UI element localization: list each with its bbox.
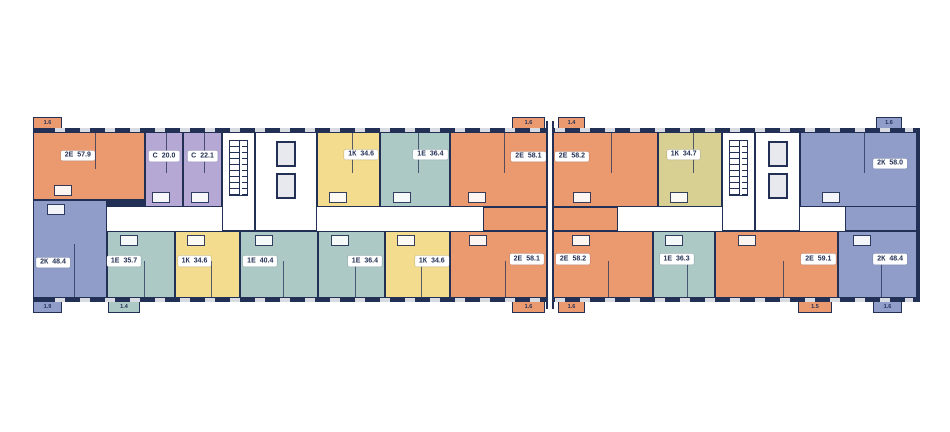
apartment-unit[interactable] — [553, 132, 658, 207]
apartment-unit[interactable] — [653, 231, 715, 298]
balcony-area-label: 1.5 — [811, 304, 819, 310]
unit-label-chip: 1Е36.3 — [659, 254, 693, 265]
elevator-shaft — [276, 141, 296, 167]
unit-type: 2Е — [559, 153, 568, 161]
unit-type: 2К — [877, 160, 885, 168]
apartment-unit[interactable] — [380, 132, 450, 207]
balcony-area-label: 1.9 — [44, 304, 52, 310]
unit-label-chip: С22.1 — [187, 151, 218, 162]
unit-label-chip: 1К34.6 — [344, 149, 378, 160]
unit-area: 58.2 — [571, 153, 585, 161]
unit-area: 57.9 — [77, 152, 91, 160]
stair-core — [222, 132, 255, 231]
unit-label-chip: 1К34.6 — [178, 256, 212, 267]
unit-label-chip: 2К58.0 — [873, 158, 907, 169]
unit-area: 34.6 — [194, 257, 208, 265]
balcony: 1.6 — [873, 301, 902, 313]
unit-type: 2Е — [560, 255, 569, 263]
unit-type: 2Е — [514, 255, 523, 263]
balcony: 1.9 — [33, 301, 62, 313]
unit-label-chip: 2Е58.1 — [511, 151, 545, 162]
unit-label-chip: 2Е58.2 — [555, 151, 589, 162]
unit-label-chip: 2Е57.9 — [61, 150, 95, 161]
unit-type: 2К — [40, 259, 48, 267]
apartment-unit[interactable] — [838, 231, 917, 298]
unit-area: 48.4 — [52, 259, 66, 267]
unit-area: 34.6 — [360, 151, 374, 159]
unit-area: 59.1 — [818, 255, 832, 263]
elevator-shaft — [276, 173, 296, 199]
unit-type: 1Е — [663, 255, 672, 263]
apartment-unit[interactable] — [450, 231, 551, 298]
unit-area: 36.4 — [364, 257, 378, 265]
unit-label-chip: 1Е40.4 — [243, 256, 277, 267]
apartment-unit[interactable] — [183, 132, 222, 207]
elevator-core — [755, 132, 800, 231]
unit-type: 1К — [348, 151, 356, 159]
unit-type: 2Е — [515, 153, 524, 161]
unit-area: 20.0 — [162, 152, 176, 160]
unit-type: 1К — [419, 257, 427, 265]
unit-label-chip: 2Е58.2 — [556, 254, 590, 265]
unit-label-chip: 2К48.4 — [873, 254, 907, 265]
unit-area: 58.1 — [528, 153, 542, 161]
unit-type: 1К — [182, 257, 190, 265]
unit-label-chip: 1Е35.7 — [107, 256, 141, 267]
balcony-area-label: 1.6 — [44, 120, 52, 126]
elevator-shaft — [768, 173, 788, 199]
unit-area: 36.4 — [430, 151, 444, 159]
unit-type: 1Е — [417, 151, 426, 159]
apartment-unit[interactable] — [800, 132, 917, 207]
unit-area: 36.3 — [676, 255, 690, 263]
unit-type: 1К — [671, 151, 679, 159]
unit-label-chip: 1Е36.4 — [348, 256, 382, 267]
apartment-unit[interactable] — [145, 132, 183, 207]
balcony-area-label: 1.6 — [525, 120, 533, 126]
elevator-shaft — [768, 141, 788, 167]
balcony-area-label: 1.6 — [885, 120, 893, 126]
balcony-area-label: 1.6 — [568, 304, 576, 310]
balcony-area-label: 1.6 — [525, 304, 533, 310]
unit-type: С — [153, 152, 158, 160]
unit-label-chip: 1К34.6 — [415, 256, 449, 267]
unit-area: 48.4 — [889, 255, 903, 263]
apartment-unit[interactable] — [715, 231, 838, 298]
stairs-icon — [229, 140, 249, 196]
unit-area: 58.0 — [889, 160, 903, 168]
unit-area: 34.6 — [431, 257, 445, 265]
unit-area: 34.7 — [683, 151, 697, 159]
unit-type: 2Е — [805, 255, 814, 263]
balcony: 1.4 — [108, 301, 140, 313]
unit-label-chip: 2Е59.1 — [801, 254, 835, 265]
apartment-unit[interactable] — [450, 132, 548, 207]
apartment-unit[interactable] — [317, 132, 380, 207]
balcony-area-label: 1.4 — [120, 304, 128, 310]
unit-label-chip: 1Е36.4 — [413, 149, 447, 160]
unit-label-chip: 2Е58.1 — [510, 254, 544, 265]
unit-type: 1Е — [352, 257, 361, 265]
unit-label-chip: С20.0 — [149, 151, 180, 162]
apartment-unit[interactable] — [553, 231, 653, 298]
apartment-unit[interactable] — [33, 132, 145, 200]
stair-core — [722, 132, 755, 231]
unit-type: 1Е — [247, 257, 256, 265]
unit-area: 22.1 — [200, 152, 214, 160]
balcony: 1.5 — [798, 301, 832, 313]
unit-type: 2К — [877, 255, 885, 263]
unit-type: С — [191, 152, 196, 160]
unit-area: 58.1 — [526, 255, 540, 263]
unit-area: 35.7 — [123, 257, 137, 265]
balcony-area-label: 1.6 — [884, 304, 892, 310]
unit-type: 2Е — [65, 152, 74, 160]
balcony: 1.6 — [512, 301, 545, 313]
balcony: 1.6 — [558, 301, 585, 313]
unit-area: 58.2 — [572, 255, 586, 263]
unit-label-chip: 2К48.4 — [36, 257, 70, 268]
apartment-unit[interactable] — [658, 132, 722, 207]
window-strip-bottom — [40, 298, 913, 302]
floorplan-canvas: 2Е57.9С20.0С22.11К34.61Е36.42Е58.12Е58.2… — [0, 0, 950, 432]
balcony-area-label: 1.4 — [568, 120, 576, 126]
stairs-icon — [729, 140, 749, 196]
unit-label-chip: 1К34.7 — [667, 149, 701, 160]
expansion-joint — [546, 121, 554, 309]
unit-area: 40.4 — [260, 257, 274, 265]
elevator-core — [255, 132, 317, 231]
apartment-unit[interactable] — [33, 200, 107, 298]
unit-type: 1Е — [111, 257, 120, 265]
